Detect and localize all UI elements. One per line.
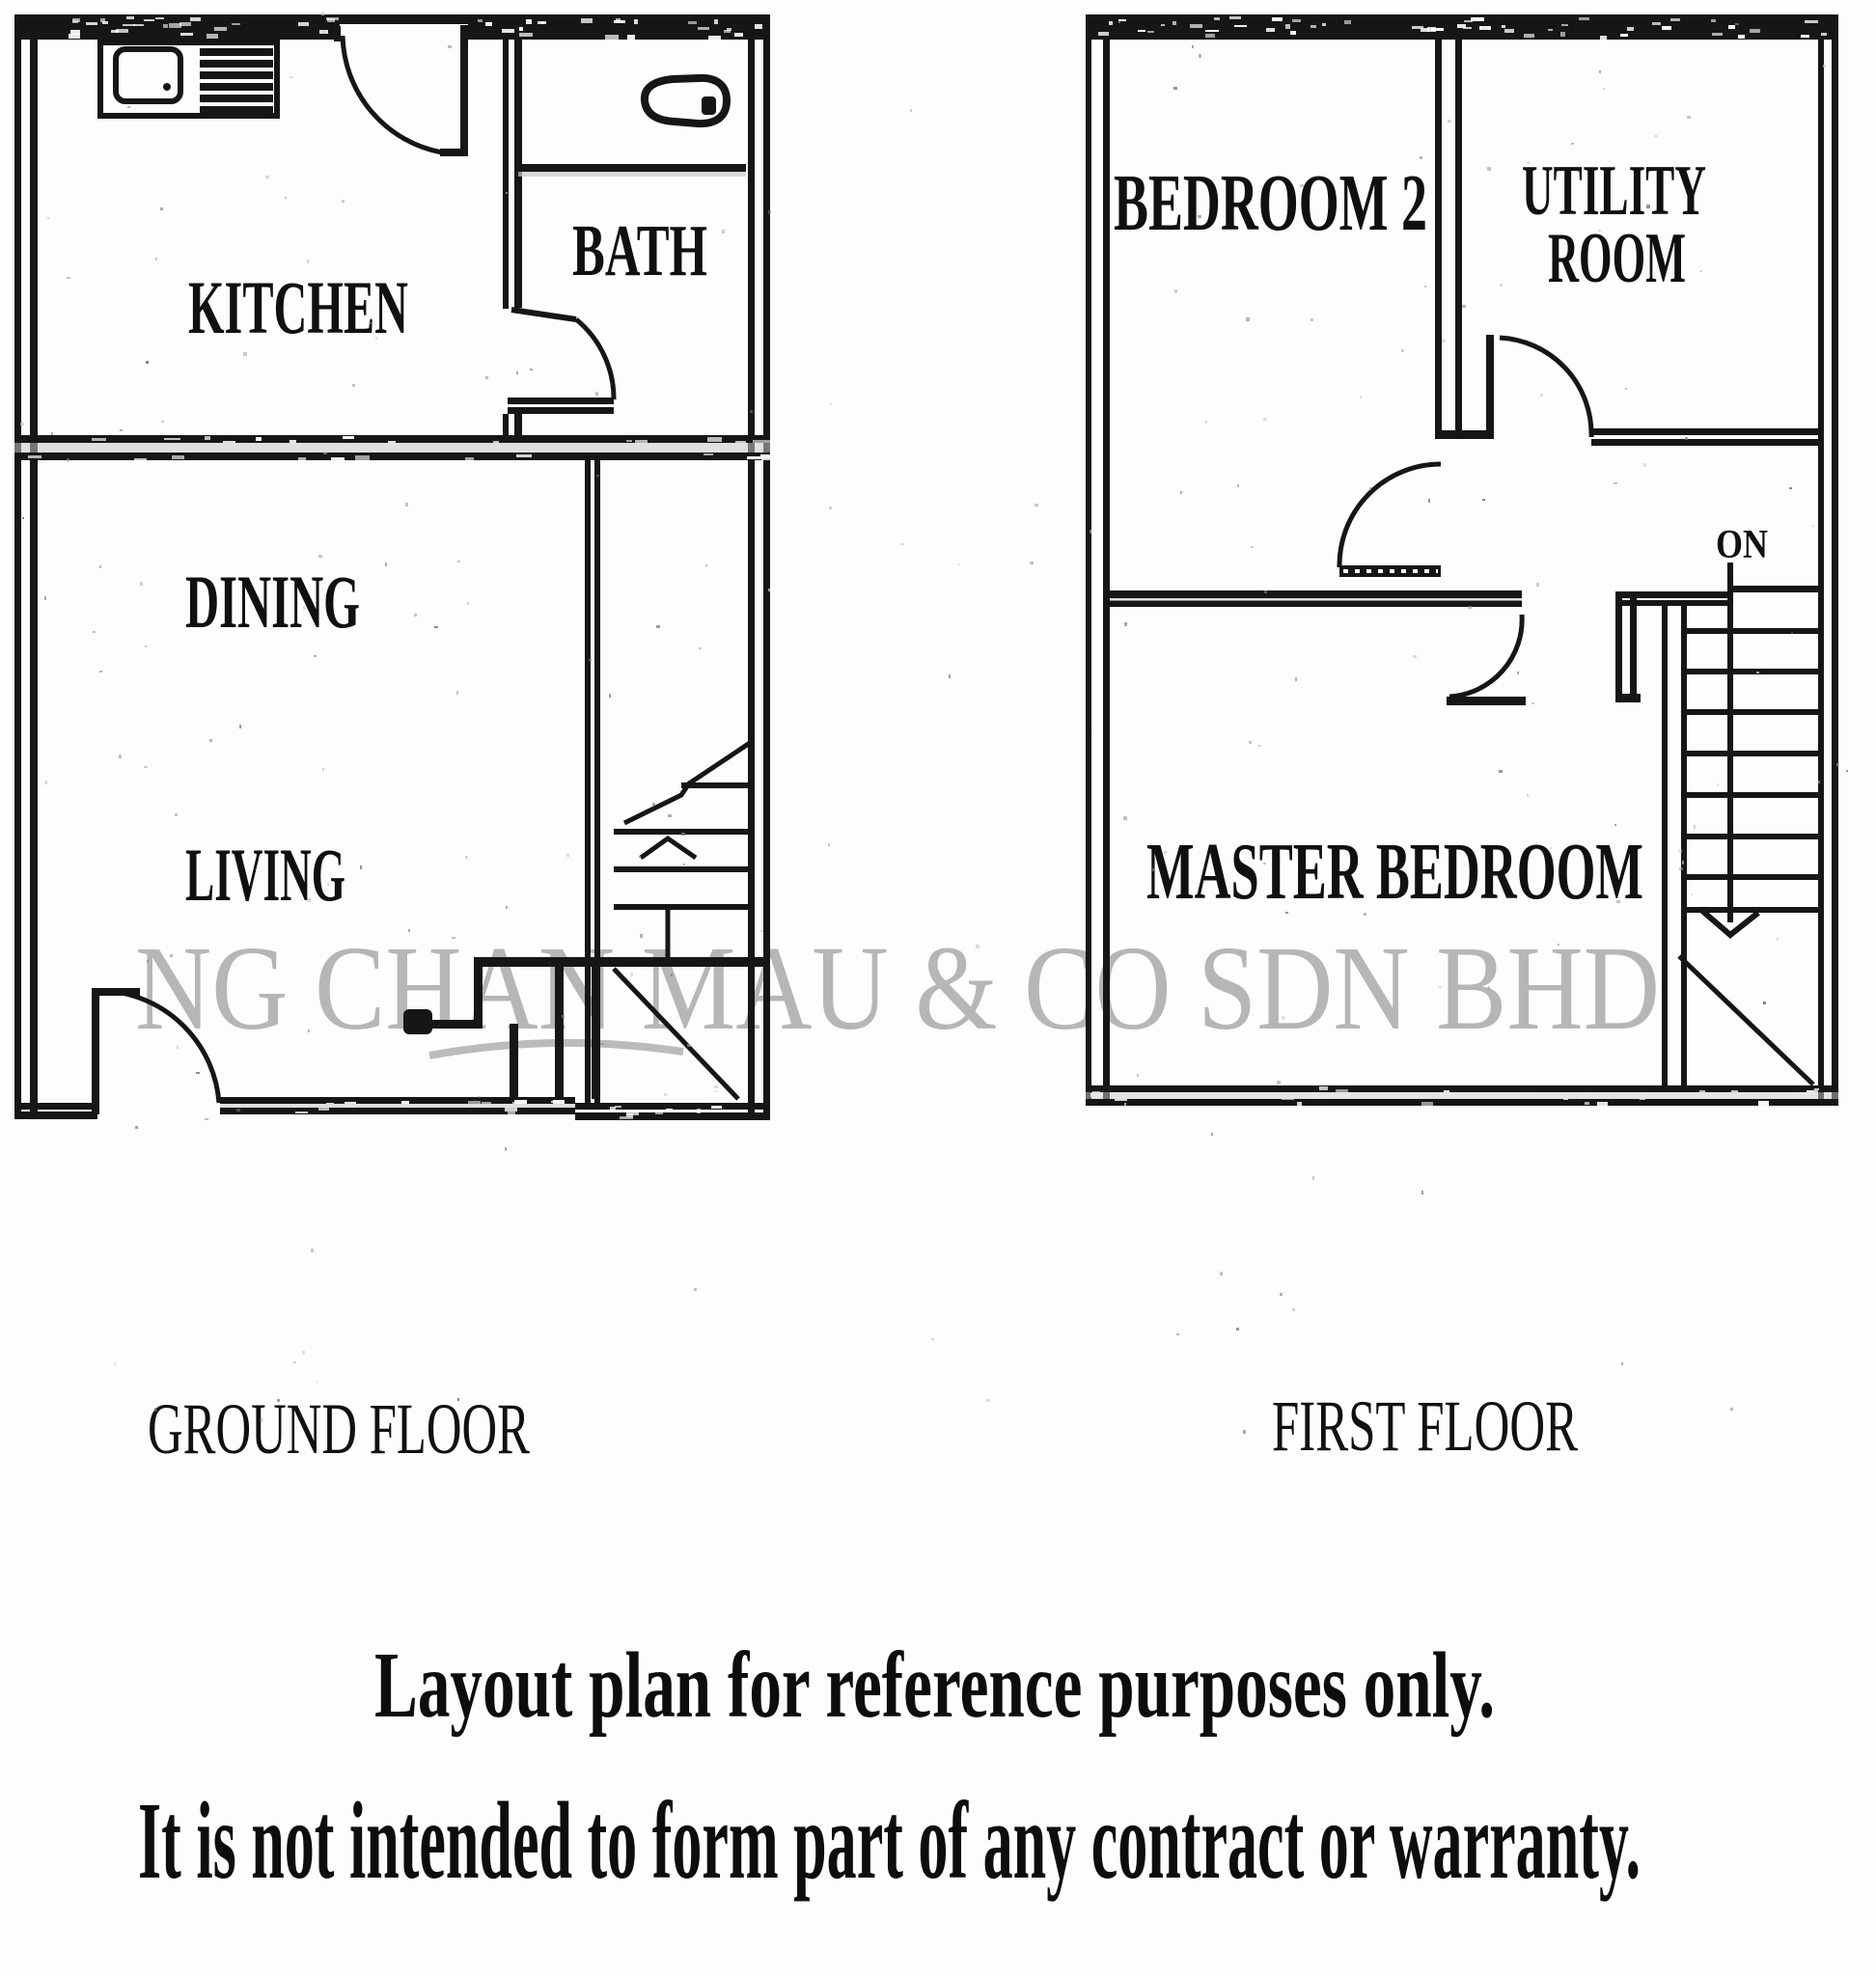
svg-text:BEDROOM 2: BEDROOM 2 [1114, 158, 1427, 248]
svg-text:It is not intended to form par: It is not intended to form part of any c… [138, 1779, 1641, 1902]
svg-text:DINING: DINING [185, 560, 360, 644]
svg-text:NG CHAN MAU & CO SDN BHD: NG CHAN MAU & CO SDN BHD [135, 922, 1660, 1056]
svg-text:ON: ON [1716, 523, 1768, 567]
svg-text:BATH: BATH [572, 210, 707, 291]
svg-text:MASTER BEDROOM: MASTER BEDROOM [1146, 827, 1643, 917]
svg-text:Layout plan for reference purp: Layout plan for reference purposes only. [374, 1633, 1495, 1737]
svg-text:FIRST FLOOR: FIRST FLOOR [1272, 1386, 1578, 1467]
svg-text:ROOM: ROOM [1548, 219, 1686, 298]
svg-text:KITCHEN: KITCHEN [188, 265, 408, 349]
svg-text:GROUND FLOOR: GROUND FLOOR [148, 1389, 530, 1469]
svg-text:LIVING: LIVING [185, 833, 345, 917]
